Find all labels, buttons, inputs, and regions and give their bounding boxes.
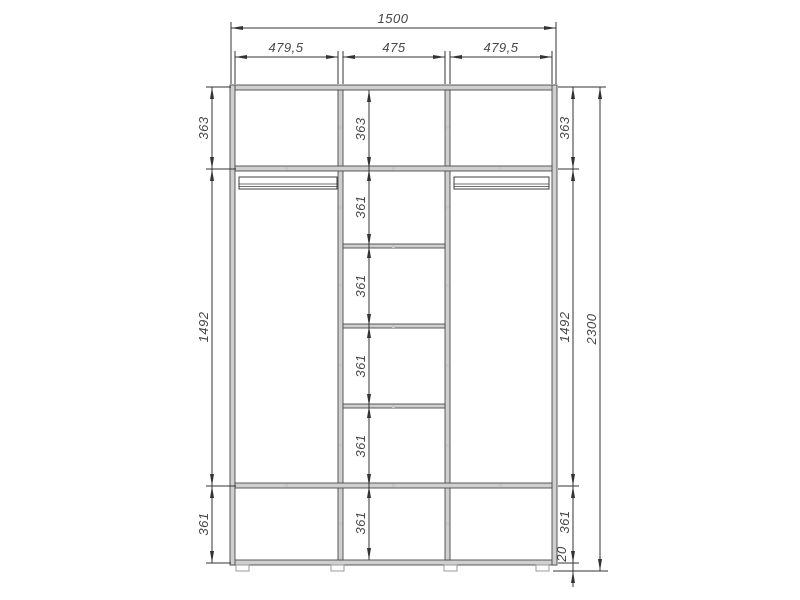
dim-label-section-center: 475 <box>382 40 405 55</box>
dim-label-plinth: 20 <box>554 546 569 563</box>
cabinet-body <box>230 85 557 571</box>
bottom-panel <box>230 560 557 565</box>
top-panel <box>230 85 557 90</box>
dim-label-left-middle: 1492 <box>196 311 211 342</box>
partition-left <box>338 90 343 560</box>
dim-label-center-6: 361 <box>353 511 368 534</box>
dim-label-center-3: 361 <box>353 274 368 297</box>
dim-label-overall-width: 1500 <box>378 11 409 26</box>
rod-outline <box>454 177 549 189</box>
dim-label-center-1: 363 <box>353 117 368 140</box>
dim-label-center-5: 361 <box>353 434 368 457</box>
drawing-canvas: 1500 479,5 475 479,5 363 1492 361 363 36… <box>0 0 800 600</box>
left-side-panel <box>230 85 235 565</box>
dimension-lines <box>212 28 600 587</box>
wardrobe-elevation-drawing: 1500 479,5 475 479,5 363 1492 361 363 36… <box>0 0 800 600</box>
dim-label-right-middle: 1492 <box>557 311 572 342</box>
foot <box>536 565 549 571</box>
dim-label-center-2: 361 <box>353 195 368 218</box>
dim-label-left-bottom: 361 <box>196 512 211 535</box>
dim-label-center-4: 361 <box>353 354 368 377</box>
dim-label-left-top: 363 <box>196 116 211 139</box>
dim-label-right-top: 363 <box>557 116 572 139</box>
dim-label-overall-height: 2300 <box>584 313 599 345</box>
extension-lines <box>206 22 608 571</box>
foot <box>236 565 249 571</box>
partition-right <box>445 90 450 560</box>
feet <box>236 565 549 571</box>
rod-outline <box>239 177 337 189</box>
dim-label-section-left: 479,5 <box>268 40 303 55</box>
foot <box>331 565 344 571</box>
dim-label-section-right: 479,5 <box>483 40 518 55</box>
dim-label-right-bottom: 361 <box>557 510 572 533</box>
hanging-rod-right <box>454 177 549 189</box>
foot <box>444 565 457 571</box>
hanging-rod-left <box>239 177 337 189</box>
dimension-labels: 1500 479,5 475 479,5 363 1492 361 363 36… <box>196 11 599 563</box>
